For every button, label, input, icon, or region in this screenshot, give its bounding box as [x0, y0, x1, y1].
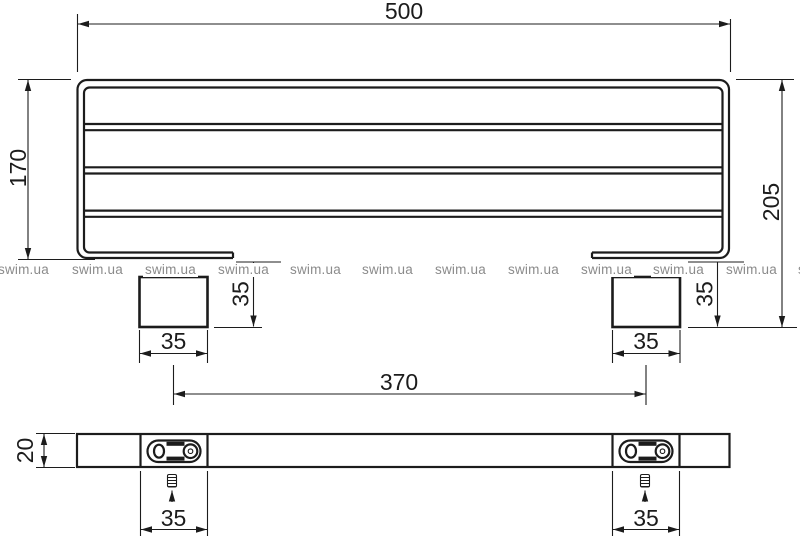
dimension-bracket-spacing: 370: [174, 365, 647, 405]
left-mounting-plate: [148, 441, 201, 463]
watermark: swim.ua: [143, 263, 198, 277]
keyhole-right-hole: [656, 444, 670, 458]
watermark: swim.ua: [360, 263, 415, 277]
slot-top-edge: [639, 442, 657, 446]
watermark: swim.ua: [651, 263, 706, 277]
bracket-spacing-label: 370: [380, 369, 418, 395]
watermark: swim.ua: [216, 263, 271, 277]
watermark: swim.ua: [70, 263, 125, 277]
dimension-frame-height: 170: [5, 80, 95, 260]
watermark: swim.ua: [433, 263, 488, 277]
screw-icon: [641, 475, 650, 488]
screw-icon: [168, 475, 177, 488]
slot-bottom-edge: [639, 457, 657, 461]
right-plate-width-label: 35: [633, 505, 659, 531]
screw-hole-center: [188, 449, 193, 454]
frame-outer-contour: [78, 80, 730, 258]
right-wall-bracket: [613, 277, 681, 327]
watermark: swim.ua: [579, 263, 634, 277]
screw-hole-center: [660, 449, 665, 454]
shelf-frame: [78, 80, 730, 258]
dimension-right-bracket-width: 35: [613, 328, 681, 363]
right-bracket-width-label: 35: [633, 328, 659, 354]
watermark: swim.ua: [506, 263, 561, 277]
right-bracket-height-label: 35: [692, 281, 718, 307]
plate-divider-lines: [141, 434, 680, 467]
left-bracket-width-label: 35: [161, 328, 187, 354]
right-screw-pointer: [641, 475, 650, 503]
keyhole-left-hole: [154, 445, 164, 458]
dimension-bar-thickness: 20: [12, 434, 75, 468]
left-bracket-height-label: 35: [228, 281, 254, 307]
watermark: swim.ua: [724, 263, 779, 277]
frame-inner-contour: [84, 88, 723, 253]
left-plate-width-label: 35: [161, 505, 187, 531]
frame-tube-endcaps: [233, 253, 592, 259]
bar-thickness-label: 20: [12, 438, 38, 464]
front-view: 500 170 205 35: [5, 0, 797, 405]
bottom-view: 20 35 35: [12, 434, 730, 537]
left-screw-pointer: [168, 475, 177, 503]
left-wall-bracket: [140, 277, 208, 327]
overall-height-label: 205: [758, 183, 784, 221]
slot-top-edge: [167, 442, 185, 446]
keyhole-right-hole: [184, 444, 198, 458]
overall-width-label: 500: [385, 0, 423, 24]
technical-drawing-page: 500 170 205 35: [0, 0, 800, 542]
extension-lines: [36, 434, 75, 468]
watermark: swim.ua: [796, 263, 800, 277]
watermark: swim.ua: [288, 263, 343, 277]
frame-height-label: 170: [5, 149, 31, 187]
watermark: swim.ua: [0, 263, 51, 277]
dimension-left-bracket-width: 35: [140, 328, 208, 363]
keyhole-left-hole: [626, 445, 636, 458]
slot-bottom-edge: [167, 457, 185, 461]
right-mounting-plate: [620, 441, 673, 463]
dimension-overall-width: 500: [78, 0, 731, 72]
shelf-rails: [84, 124, 723, 217]
